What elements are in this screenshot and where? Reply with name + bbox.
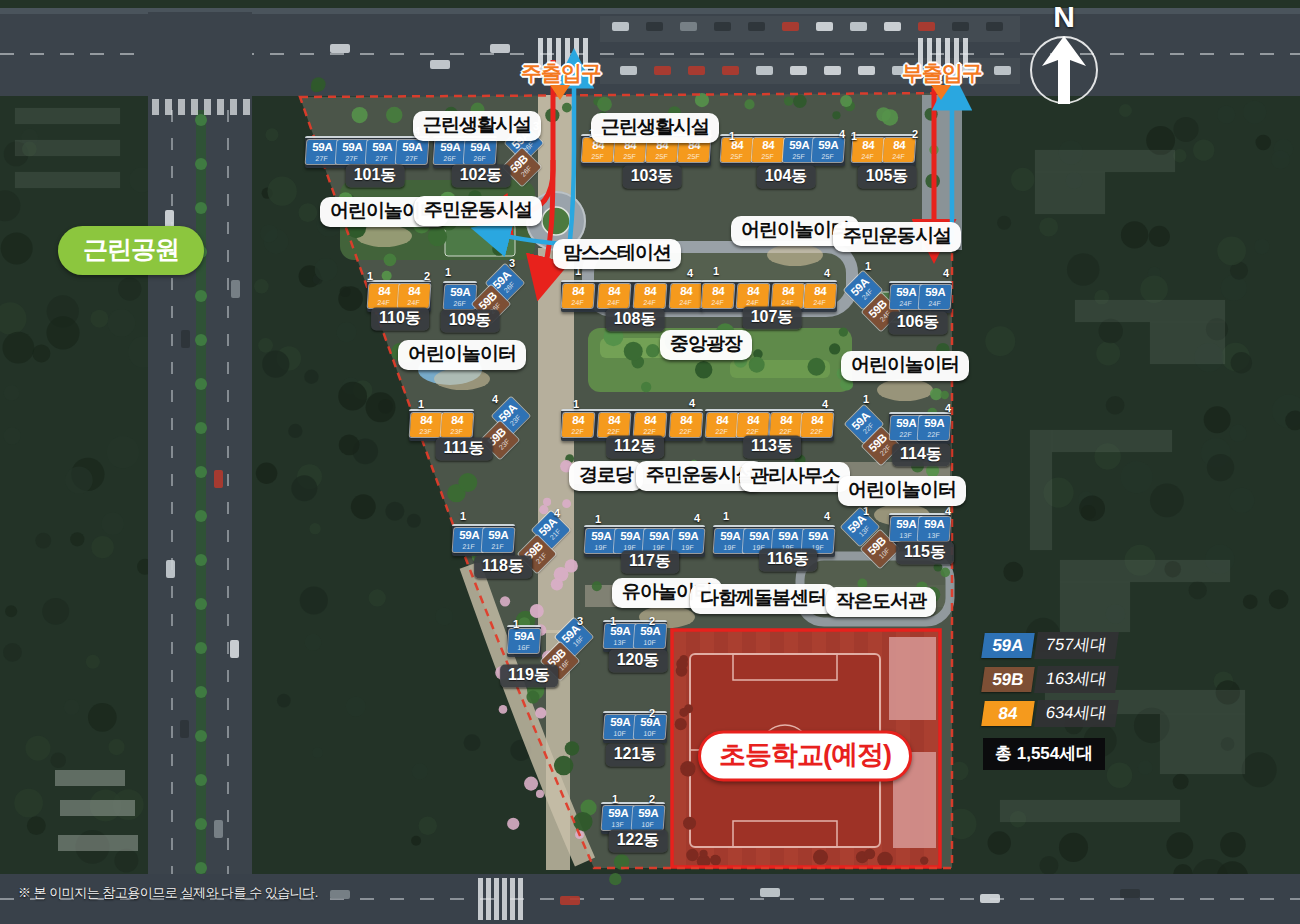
legend-badge-84: 84: [981, 701, 1035, 726]
disclaimer-text: ※ 본 이미지는 참고용이므로 실제와 다를 수 있습니다.: [18, 884, 318, 902]
site-plan-map: 59A27F59A27F59A27F59A27F101동459A26F59A26…: [0, 0, 1300, 924]
legend-badge-59B: 59B: [981, 667, 1035, 692]
legend-row: 59A757세대: [983, 633, 1117, 658]
north-compass: N: [1024, 2, 1104, 114]
site-plan-base-art: [0, 0, 1300, 924]
legend-count: 634세대: [1034, 700, 1118, 727]
north-arrow-icon: [1024, 32, 1104, 110]
school-label: 초등학교(예정): [698, 731, 912, 782]
legend-count: 757세대: [1034, 632, 1118, 659]
park-label: 근린공원: [58, 226, 204, 275]
north-label: N: [1024, 2, 1104, 32]
legend-row: 59B163세대: [983, 667, 1117, 692]
unit-legend: 59A757세대59B163세대84634세대 총 1,554세대: [983, 633, 1117, 770]
legend-row: 84634세대: [983, 701, 1117, 726]
legend-badge-59A: 59A: [981, 633, 1035, 658]
legend-count: 163세대: [1034, 666, 1118, 693]
legend-total: 총 1,554세대: [983, 738, 1105, 770]
